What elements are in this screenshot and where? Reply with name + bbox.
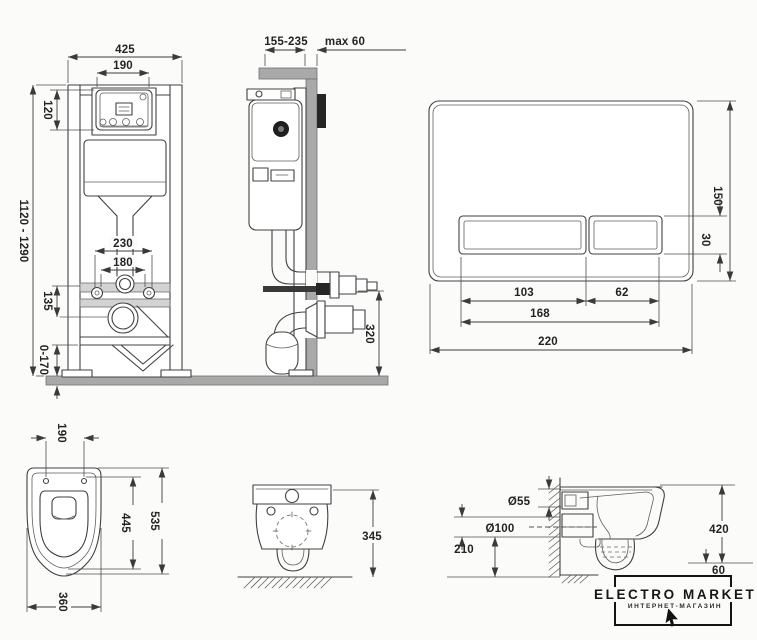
flush-button-small bbox=[589, 216, 662, 254]
technical-drawing-sheet: 425 190 120 1120 - 1290 230 180 135 0-17… bbox=[0, 0, 757, 640]
wall-hatching bbox=[549, 484, 560, 577]
dim-bowl-total-height: 420 bbox=[709, 524, 729, 536]
dim-bracket-offset: 135 bbox=[41, 291, 53, 311]
frame-side-view bbox=[247, 68, 377, 376]
dim-button-height: 30 bbox=[699, 233, 711, 246]
dim-frame-depth: 155-235 bbox=[264, 36, 308, 48]
logo-title-text: ELECTRO MARKET bbox=[592, 587, 757, 602]
ground-hatching bbox=[244, 577, 332, 588]
fixing-bolt-left bbox=[92, 288, 103, 299]
drain-flange bbox=[317, 301, 325, 338]
logo: ELECTRO MARKET ИНТЕРНЕТ-МАГАЗИН bbox=[592, 570, 757, 638]
dim-wall-thickness: max 60 bbox=[325, 36, 365, 48]
bowl-top-slab bbox=[253, 485, 331, 504]
access-opening bbox=[92, 88, 156, 135]
cursor-icon bbox=[664, 609, 680, 629]
bowl-top-view bbox=[27, 468, 101, 576]
dim-seat-hole-span: 190 bbox=[55, 423, 67, 443]
bowl-side-view bbox=[529, 478, 664, 583]
drain-trap bbox=[266, 332, 298, 374]
dim-bowl-width: 360 bbox=[56, 592, 68, 612]
dim-plate-width: 220 bbox=[538, 336, 558, 348]
dim-bowl-inner-length: 445 bbox=[119, 513, 131, 533]
dim-fixing-span: 230 bbox=[113, 238, 133, 250]
dim-small-button-width: 62 bbox=[615, 287, 628, 299]
inlet-connector bbox=[562, 492, 588, 509]
supply-valve bbox=[339, 276, 356, 294]
dim-pipe-span: 180 bbox=[113, 257, 133, 269]
dim-plate-height: 150 bbox=[711, 186, 723, 206]
outlet-connector bbox=[562, 514, 593, 537]
frame-front-view bbox=[60, 85, 191, 377]
dim-install-height: 1120 - 1290 bbox=[17, 200, 29, 263]
dim-inlet-diameter: Ø55 bbox=[508, 496, 531, 508]
seat-hole-left bbox=[44, 479, 49, 484]
dim-large-button-width: 103 bbox=[514, 287, 534, 299]
dim-bowl-height: 345 bbox=[362, 531, 382, 543]
bowl-front-view: 345 bbox=[238, 485, 389, 588]
adjustable-foot-left bbox=[62, 370, 92, 377]
drain-outlet bbox=[325, 306, 353, 333]
fixing-rod bbox=[263, 286, 318, 292]
flush-plate-view bbox=[429, 101, 693, 281]
cistern-side bbox=[249, 100, 302, 230]
dim-frame-width: 425 bbox=[115, 44, 135, 56]
seat-hole-right bbox=[82, 479, 87, 484]
floor-hatching bbox=[562, 575, 589, 583]
ceiling-bracket bbox=[259, 68, 317, 79]
bowl-outline-top bbox=[27, 468, 101, 576]
dim-outlet-height: 320 bbox=[363, 324, 375, 344]
flush-pipe-connection bbox=[116, 275, 134, 293]
dim-outlet-diameter: Ø100 bbox=[486, 523, 515, 535]
fixing-bolt-right bbox=[144, 288, 155, 299]
dim-opening-width: 190 bbox=[113, 60, 133, 72]
dim-panel-height: 120 bbox=[41, 100, 53, 120]
flush-plate-edge bbox=[317, 94, 326, 128]
dim-bowl-length: 535 bbox=[148, 511, 160, 531]
flush-button-large bbox=[459, 216, 586, 254]
logo-title: ELECTRO MARKET bbox=[592, 586, 757, 604]
dim-outlet-height: 210 bbox=[454, 544, 474, 556]
technical-drawing: 425 190 120 1120 - 1290 230 180 135 0-17… bbox=[0, 0, 757, 640]
dim-foot-adjust: 0-170 bbox=[37, 345, 49, 375]
dim-buttons-width: 168 bbox=[530, 308, 550, 320]
adjustable-foot-right bbox=[161, 370, 191, 377]
